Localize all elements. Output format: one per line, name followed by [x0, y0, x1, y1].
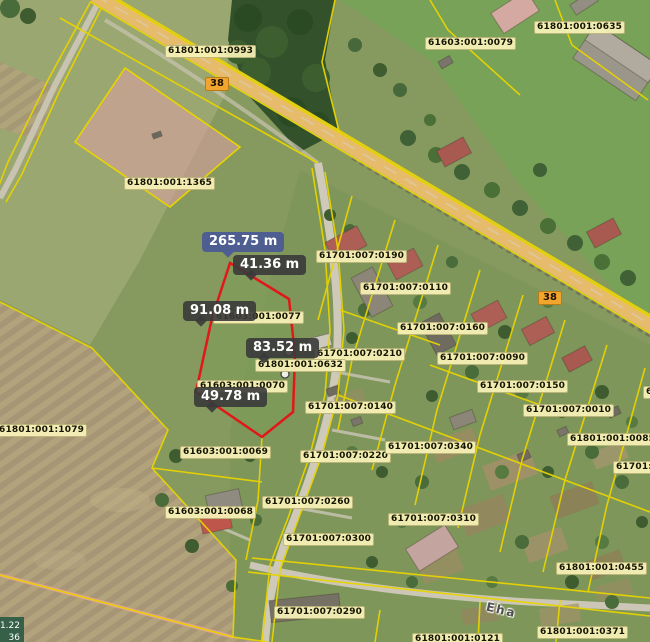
coordinate-line: 36 [0, 632, 20, 642]
measurement-segment-tooltip: 83.52 m [246, 338, 319, 358]
measurement-segment-tooltip: 91.08 m [183, 301, 256, 321]
measurement-segment-tooltip: 41.36 m [233, 255, 306, 275]
coordinate-line: 1.22 [0, 620, 20, 632]
measurement-segment-tooltip: 49.78 m [194, 387, 267, 407]
measurement-total-tooltip: 265.75 m [202, 232, 284, 252]
measurement-layer: 265.75 m41.36 m91.08 m83.52 m49.78 m [0, 0, 650, 642]
map-canvas[interactable]: 61801:001:099361603:001:007961801:001:06… [0, 0, 650, 642]
coordinate-readout: 1.2236 [0, 617, 24, 642]
